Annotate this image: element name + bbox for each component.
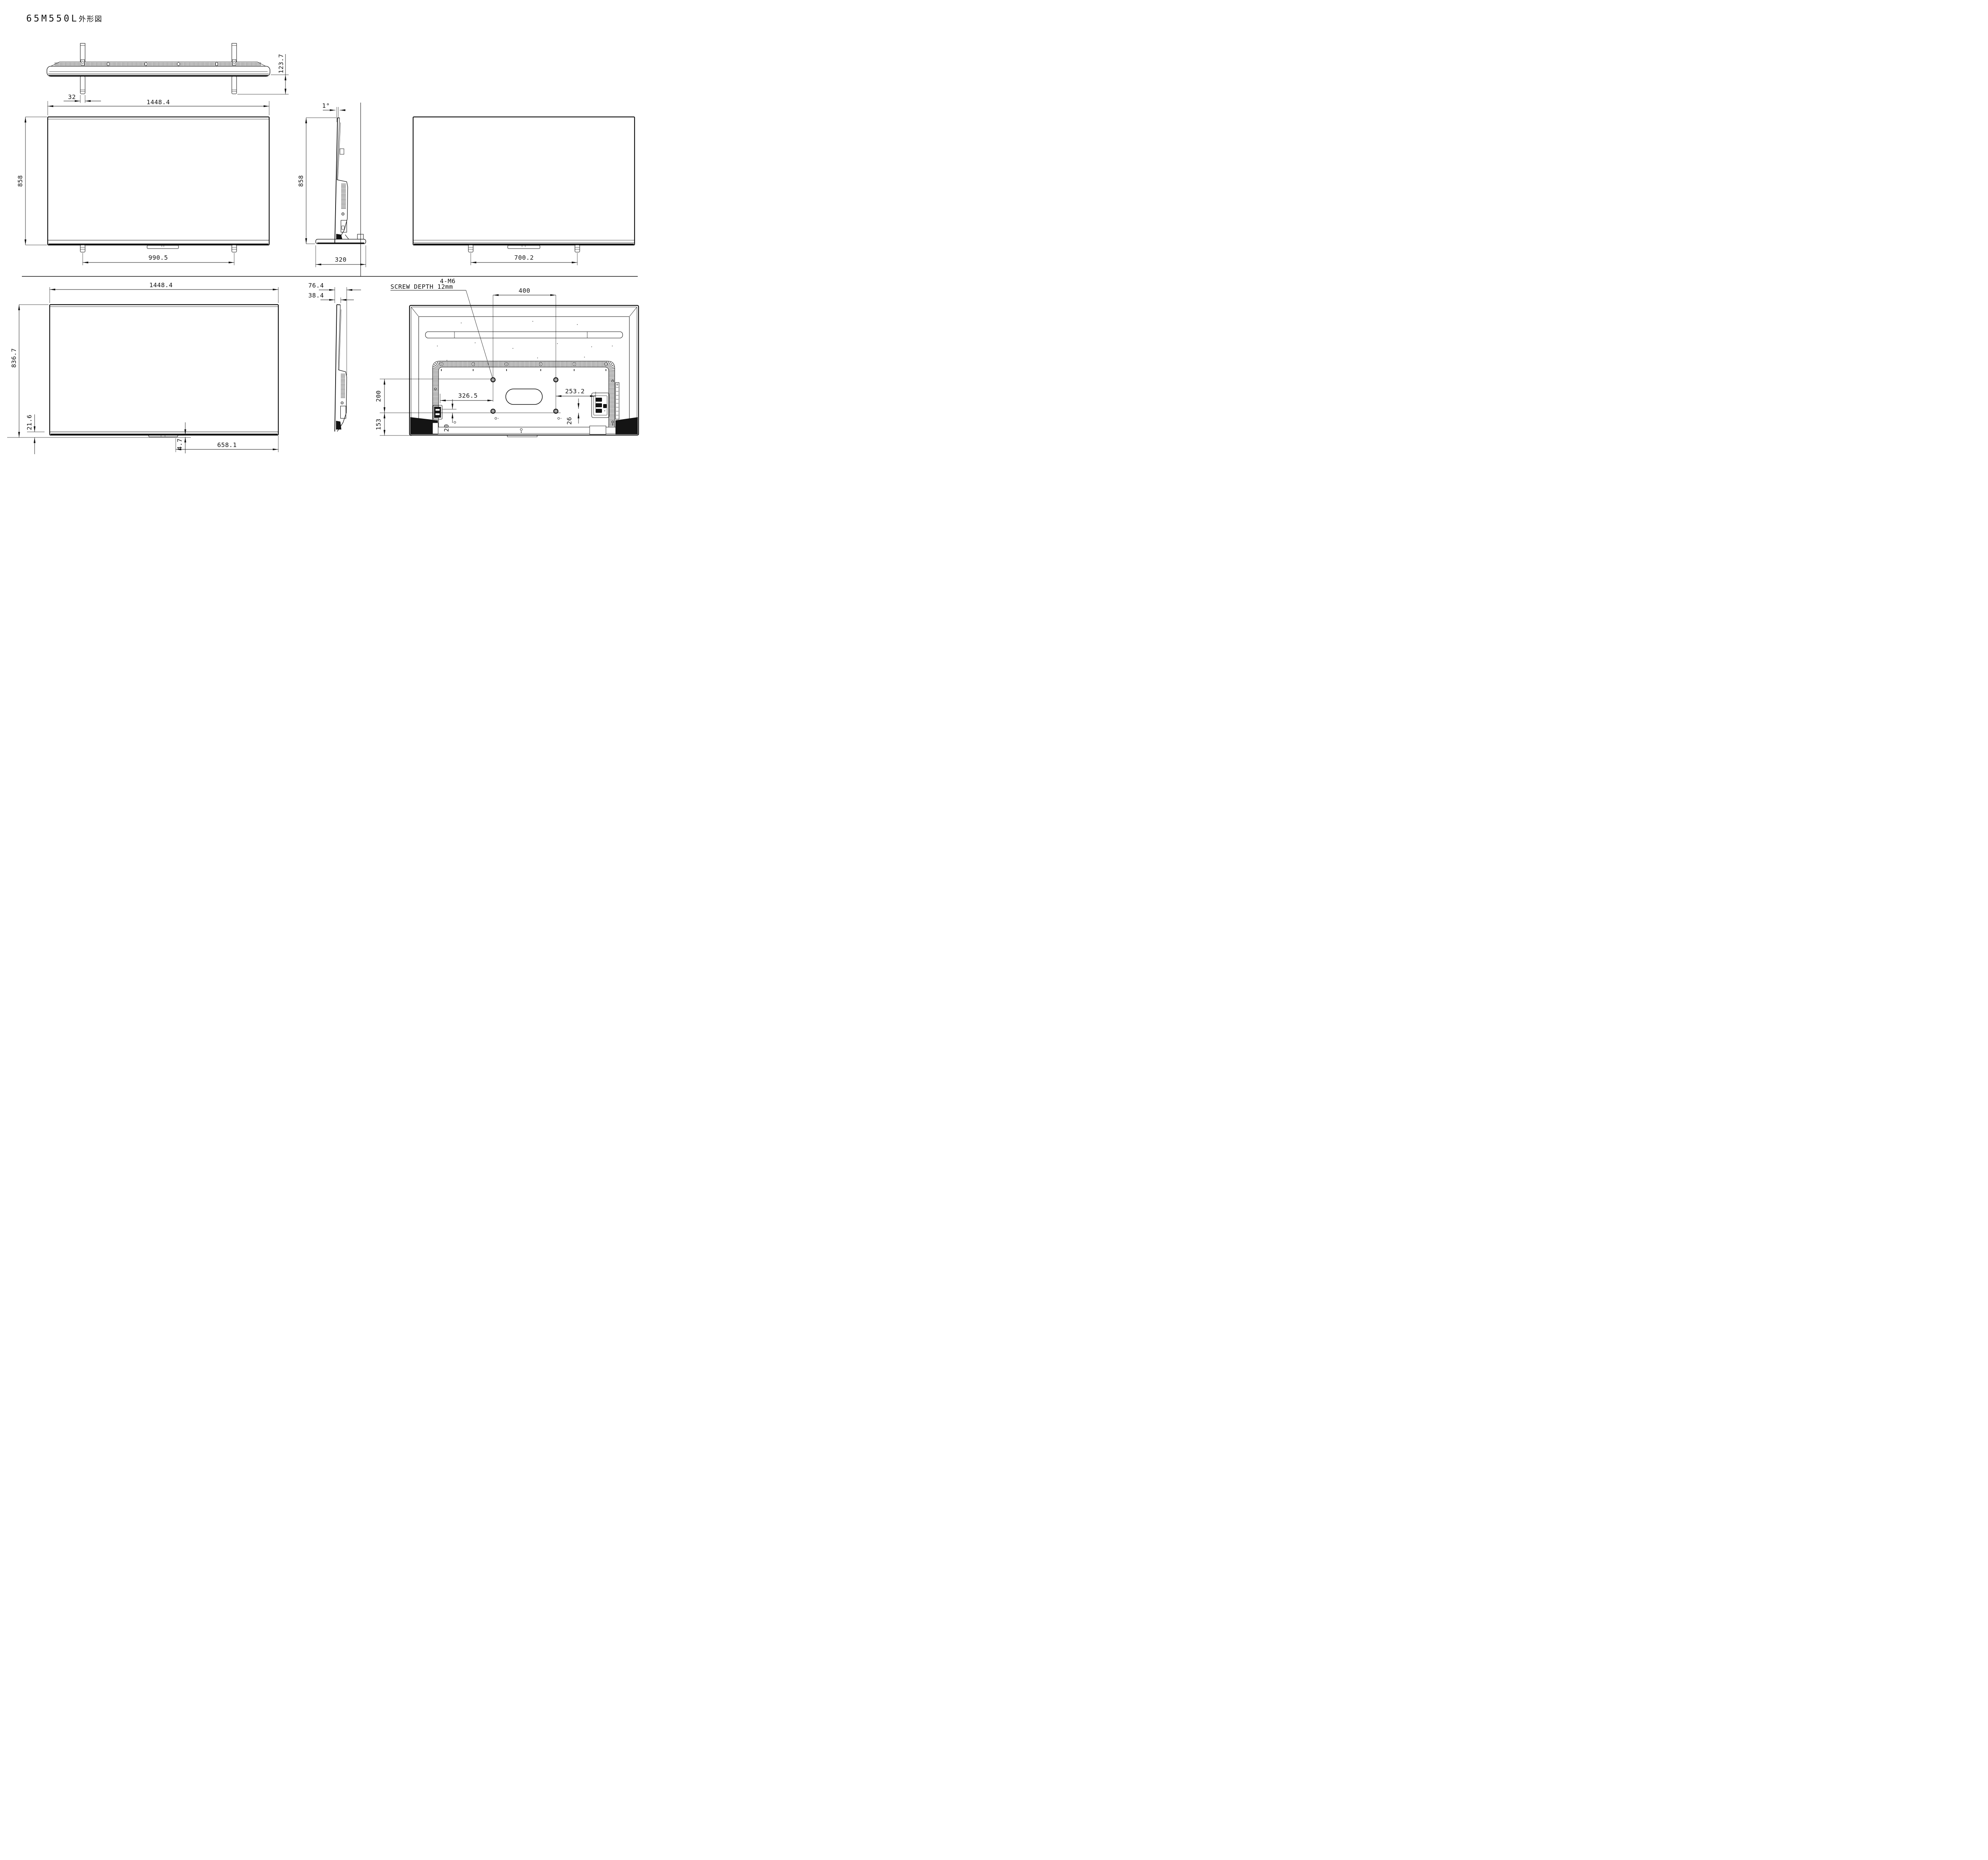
dim-text-vesa-to-right: 253.2: [565, 388, 584, 395]
dim-text-leg-width: 32: [68, 93, 76, 101]
top-body-outline: [47, 66, 270, 77]
dim-panel-depth: 38.4: [308, 292, 354, 303]
dim-front-height: 858: [17, 117, 47, 245]
dim-text-overall-depth: 123.7: [278, 54, 285, 73]
dim-text-vesa-width: 400: [518, 287, 530, 294]
sheet-dividers: [22, 103, 638, 276]
grille-oval-3: [177, 62, 180, 66]
stand-leg-right-top: [232, 43, 237, 94]
drawing-type-label: 外形図: [79, 15, 103, 23]
rear-handle-cutout: [506, 389, 542, 404]
leg-left-front-arm: [80, 76, 85, 94]
side-connector-strip: [615, 383, 619, 419]
side-top-cap: [338, 118, 340, 118]
front-foot-right: [232, 245, 237, 252]
dim-vesa-to-bottom: 153: [375, 413, 412, 435]
dim-text-left-to-vesa: 326.5: [458, 392, 478, 399]
side-screw-boss-dot: [343, 214, 344, 214]
dim-offset-right: 26: [566, 398, 579, 425]
bottom-right-wedge: [615, 417, 638, 434]
grille-oval-1: [107, 62, 109, 66]
front-view: 858 990.5: [17, 117, 269, 265]
dim-text-bottom-offset: 658.1: [217, 441, 237, 449]
dim-vesa-width: 400: [493, 287, 556, 295]
front-view-panel-only: 1448.4 836.7 21.6 4.7 658.1: [7, 282, 278, 454]
dim-text-panel-depth: 38.4: [308, 292, 324, 299]
dim-left-to-vesa: 326.5: [440, 392, 493, 403]
dim-text-panel-width: 1448.4: [149, 282, 173, 289]
side-wall-bracket-tab: [340, 149, 344, 154]
dim-stand-leg-width: 32: [64, 93, 101, 103]
grille-oval-4: [215, 62, 218, 66]
dim-front-feet-span: 990.5: [83, 253, 234, 265]
model-number: 65M550L: [26, 14, 79, 24]
side2-bottom-shadow: [336, 421, 342, 430]
dim-text-base-depth: 320: [335, 256, 347, 263]
dim-text-max-depth: 76.4: [308, 282, 324, 289]
panel-outline: [50, 305, 278, 435]
outline-drawing-svg: 65M550L 外形図: [0, 0, 658, 465]
leg-left-hub: [81, 60, 85, 65]
rear-view: 700.2: [413, 117, 635, 265]
front-foot-left: [80, 245, 85, 252]
button-power: [603, 404, 607, 408]
rear-foot-right: [575, 245, 580, 252]
dim-text-protrusion: 4.7: [176, 438, 183, 450]
top-view: 32 1448.4 123.7: [47, 43, 289, 115]
dim-text-offset-left: 20: [443, 424, 450, 432]
button-1: [596, 398, 602, 402]
leg-right-front-arm: [232, 76, 237, 94]
button-2: [596, 403, 602, 407]
dim-text-side-height: 858: [297, 175, 305, 187]
left-connector-panel: [433, 405, 442, 419]
side-front-face: [335, 118, 338, 244]
stand-leg-left-top: [80, 43, 85, 94]
dim-bottom-bezel: 21.6: [26, 414, 45, 454]
leg-right-hub: [233, 60, 236, 65]
dim-panel-width: 1448.4: [50, 282, 278, 303]
side-electronics-bulge: [337, 180, 348, 239]
dim-vesa-height: 200: [375, 379, 384, 413]
vesa-hole-bottom-left: [491, 409, 495, 413]
dim-tilt-angle: 1°: [322, 102, 346, 122]
rear-view-detail: 4-M6 SCREW DEPTH 12mm 400 326.5 20 253.2: [375, 278, 639, 437]
rear-outline: [413, 117, 635, 245]
dim-text-bottom-bezel: 21.6: [26, 414, 33, 430]
rear-speaker-bar: [425, 332, 623, 338]
left-label-plate: [433, 423, 438, 434]
dim-text-overall-width: 1448.4: [147, 99, 170, 106]
dim-rear-feet-span: 700.2: [471, 253, 577, 265]
side2-top-cap: [337, 305, 340, 305]
drawing-sheet: 65M550L 外形図: [0, 0, 658, 465]
control-buttons-panel: [592, 393, 609, 418]
dim-text-vesa-height: 200: [375, 390, 382, 402]
dim-text-offset-right: 26: [566, 417, 573, 425]
dim-text-front-height: 858: [17, 175, 24, 187]
leg-right-rear-arm: [232, 43, 237, 62]
rear-center-base-plate: [508, 245, 540, 249]
dim-text-rear-feet-span: 700.2: [514, 254, 534, 261]
button-3: [596, 409, 602, 413]
rear-foot-left: [468, 245, 473, 252]
dim-text-feet-span: 990.5: [148, 254, 168, 261]
front-center-base-plate: [147, 245, 179, 249]
dim-text-panel-height: 836.7: [10, 348, 17, 367]
side-view-panel-only: 76.4 38.4: [308, 282, 361, 431]
rating-label-plate: [590, 426, 606, 434]
title-block: 65M550L 外形図: [26, 14, 103, 24]
dim-text-vesa-to-bottom: 153: [375, 418, 382, 430]
rear-panel-dots: [437, 321, 613, 361]
rear2-outer: [410, 305, 639, 435]
dim-vesa-to-right: 253.2: [556, 388, 596, 409]
front-outline: [48, 117, 269, 245]
small-screws: [434, 380, 613, 433]
dim-text-tilt: 1°: [322, 102, 330, 109]
side-view: 1° 858 320: [297, 102, 366, 267]
dim-overall-width-top: 1448.4: [48, 99, 269, 115]
side-connector-tab: [342, 226, 345, 229]
dim-protrusion-height: 4.7: [176, 422, 185, 453]
dim-side-height: 858: [297, 118, 336, 244]
dim-bottom-offset: 658.1: [176, 436, 278, 452]
screw-note-line2: SCREW DEPTH 12mm: [390, 283, 453, 290]
leg-left-rear-arm: [80, 43, 85, 62]
side2-front-face: [335, 305, 337, 431]
dim-base-depth: 320: [316, 245, 366, 267]
grille-oval-2: [145, 62, 147, 66]
